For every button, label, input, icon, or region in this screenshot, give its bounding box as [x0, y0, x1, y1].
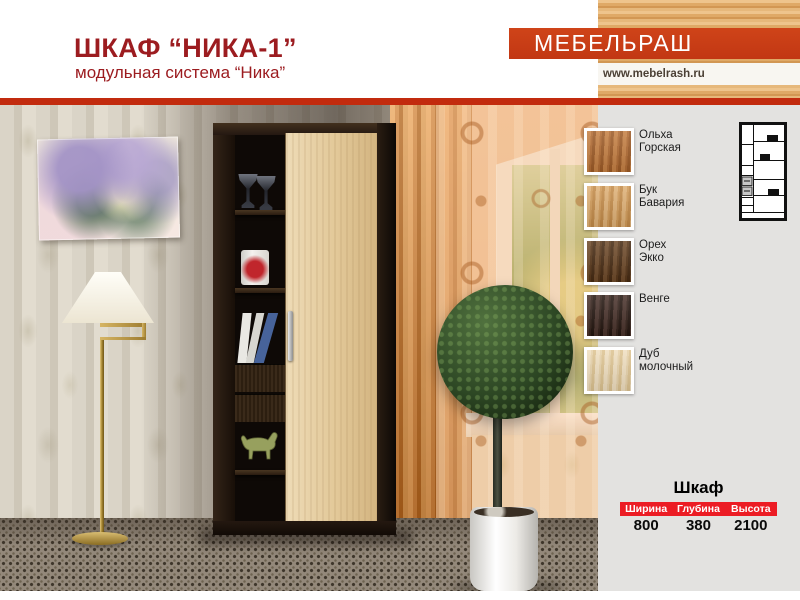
- bottom-margin: [0, 591, 800, 600]
- finish-swatch-buk-bavaria: [584, 183, 634, 230]
- spec-col-depth: Глубина: [672, 502, 724, 516]
- finish-swatch-orekh-ekko: [584, 238, 634, 285]
- page-title: ШКАФ “НИКА-1”: [74, 33, 297, 64]
- spec-value-depth: 380: [672, 517, 724, 534]
- page-subtitle: модульная система “Ника”: [75, 63, 285, 83]
- swatch-label-line1: Венге: [639, 293, 789, 306]
- door-handle: [288, 311, 293, 361]
- swatch-label: Бук Бавария: [639, 184, 789, 210]
- spec-value-height: 2100: [725, 517, 777, 534]
- swatch-label-line1: Орех: [639, 239, 789, 252]
- wardrobe-drawers: [235, 364, 285, 422]
- finish-swatch-dub-molochny: [584, 347, 634, 394]
- plant-soil: [474, 507, 534, 517]
- swatch-label: Венге: [639, 293, 789, 306]
- topiary-plant: [437, 285, 573, 419]
- dog-figurine: [237, 429, 283, 463]
- spec-col-width: Ширина: [620, 502, 672, 516]
- swatch-label-line2: молочный: [639, 361, 789, 374]
- website-band: www.mebelrash.ru: [598, 63, 800, 85]
- plant-trunk: [493, 403, 502, 521]
- swatch-label: Ольха Горская: [639, 129, 789, 155]
- floor-lamp-arm2: [100, 337, 146, 340]
- spec-table-title: Шкаф: [620, 478, 777, 498]
- swatch-label-line2: Экко: [639, 252, 789, 265]
- finish-swatch-olkha-gorskaya: [584, 128, 634, 175]
- wardrobe: [213, 123, 396, 535]
- plant-pot: [470, 507, 538, 591]
- wardrobe-right-panel: [377, 123, 396, 535]
- catalog-page: ШКАФ “НИКА-1” модульная система “Ника” М…: [0, 0, 800, 600]
- wardrobe-base: [213, 521, 396, 535]
- swatch-label-line1: Дуб: [639, 348, 789, 361]
- floor-lamp-arm: [100, 323, 146, 327]
- spec-table-header: Ширина Глубина Высота: [620, 502, 777, 516]
- room-photo: [0, 105, 598, 591]
- wardrobe-left-panel: [213, 123, 235, 535]
- drawer: [235, 364, 285, 392]
- floor-lamp-pole: [100, 340, 104, 537]
- swatch-label: Орех Экко: [639, 239, 789, 265]
- drawer: [235, 394, 285, 422]
- website-url: www.mebelrash.ru: [603, 68, 705, 80]
- finish-swatch-venge: [584, 292, 634, 339]
- shelf: [235, 210, 285, 215]
- decor-mug: [241, 250, 269, 285]
- swatch-label-line2: Горская: [639, 142, 789, 155]
- brand-banner: МЕБЕЛЬРАШ: [509, 28, 800, 59]
- spec-value-width: 800: [620, 517, 672, 534]
- divider-stripe: [0, 98, 800, 105]
- flower-painting: [37, 137, 180, 241]
- floor-lamp-base: [72, 532, 128, 545]
- swatch-label-line1: Ольха: [639, 129, 789, 142]
- spec-table-values: 800 380 2100: [620, 517, 777, 534]
- spec-col-height: Высота: [725, 502, 777, 516]
- shelf: [235, 470, 285, 475]
- swatch-label-line1: Бук: [639, 184, 789, 197]
- swatch-label-line2: Бавария: [639, 197, 789, 210]
- wardrobe-door: [285, 133, 378, 523]
- shelf: [235, 288, 285, 293]
- swatch-label: Дуб молочный: [639, 348, 789, 374]
- brand-name: МЕБЕЛЬРАШ: [534, 30, 693, 56]
